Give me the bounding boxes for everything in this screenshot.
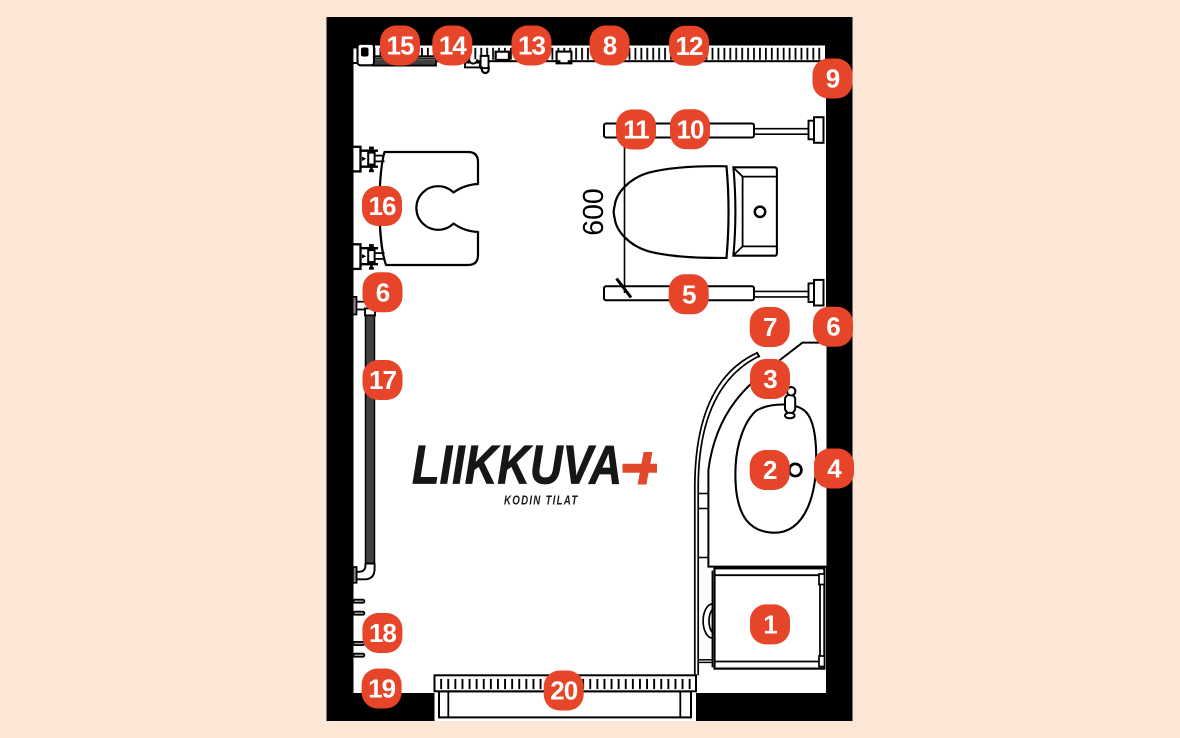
- svg-text:14: 14: [439, 31, 467, 61]
- svg-text:9: 9: [826, 64, 840, 94]
- svg-text:11: 11: [623, 115, 649, 145]
- svg-text:7: 7: [763, 312, 777, 342]
- svg-text:LIIKKUVA: LIIKKUVA: [412, 433, 622, 495]
- svg-text:18: 18: [369, 618, 396, 648]
- svg-text:16: 16: [369, 191, 396, 221]
- svg-text:6: 6: [376, 277, 390, 307]
- svg-text:KODIN TILAT: KODIN TILAT: [504, 493, 579, 507]
- svg-text:19: 19: [368, 674, 395, 704]
- svg-text:3: 3: [763, 364, 777, 394]
- svg-text:15: 15: [387, 31, 414, 61]
- svg-text:2: 2: [763, 455, 777, 485]
- svg-text:600: 600: [578, 188, 610, 236]
- svg-text:12: 12: [676, 31, 703, 61]
- svg-text:6: 6: [826, 312, 840, 342]
- svg-text:8: 8: [603, 31, 617, 61]
- svg-text:20: 20: [550, 676, 577, 706]
- svg-text:17: 17: [369, 365, 396, 395]
- svg-text:4: 4: [827, 454, 842, 484]
- svg-text:13: 13: [518, 31, 545, 61]
- svg-text:1: 1: [763, 609, 777, 639]
- svg-text:10: 10: [677, 114, 704, 144]
- svg-text:5: 5: [682, 279, 696, 309]
